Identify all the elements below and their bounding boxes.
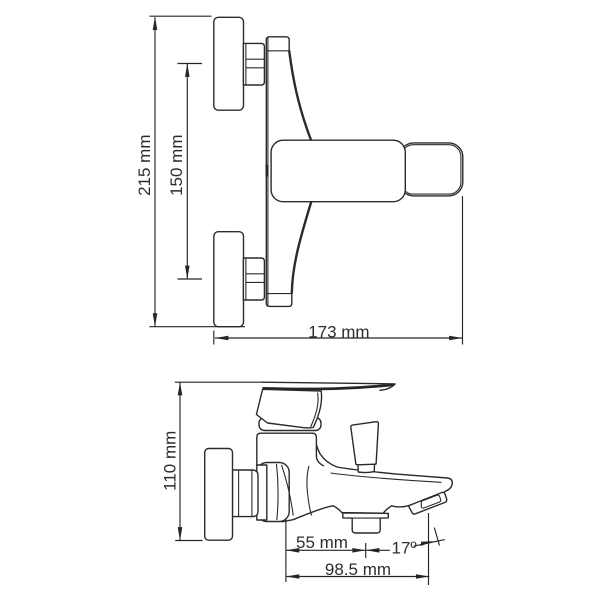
- svg-text:98.5 mm: 98.5 mm: [325, 560, 391, 579]
- svg-text:55 mm: 55 mm: [296, 533, 348, 552]
- svg-text:110 mm: 110 mm: [161, 431, 180, 491]
- svg-text:215 mm: 215 mm: [135, 134, 154, 195]
- svg-text:150 mm: 150 mm: [167, 134, 186, 195]
- svg-text:173 mm: 173 mm: [308, 322, 369, 341]
- svg-text:17º: 17º: [392, 539, 417, 558]
